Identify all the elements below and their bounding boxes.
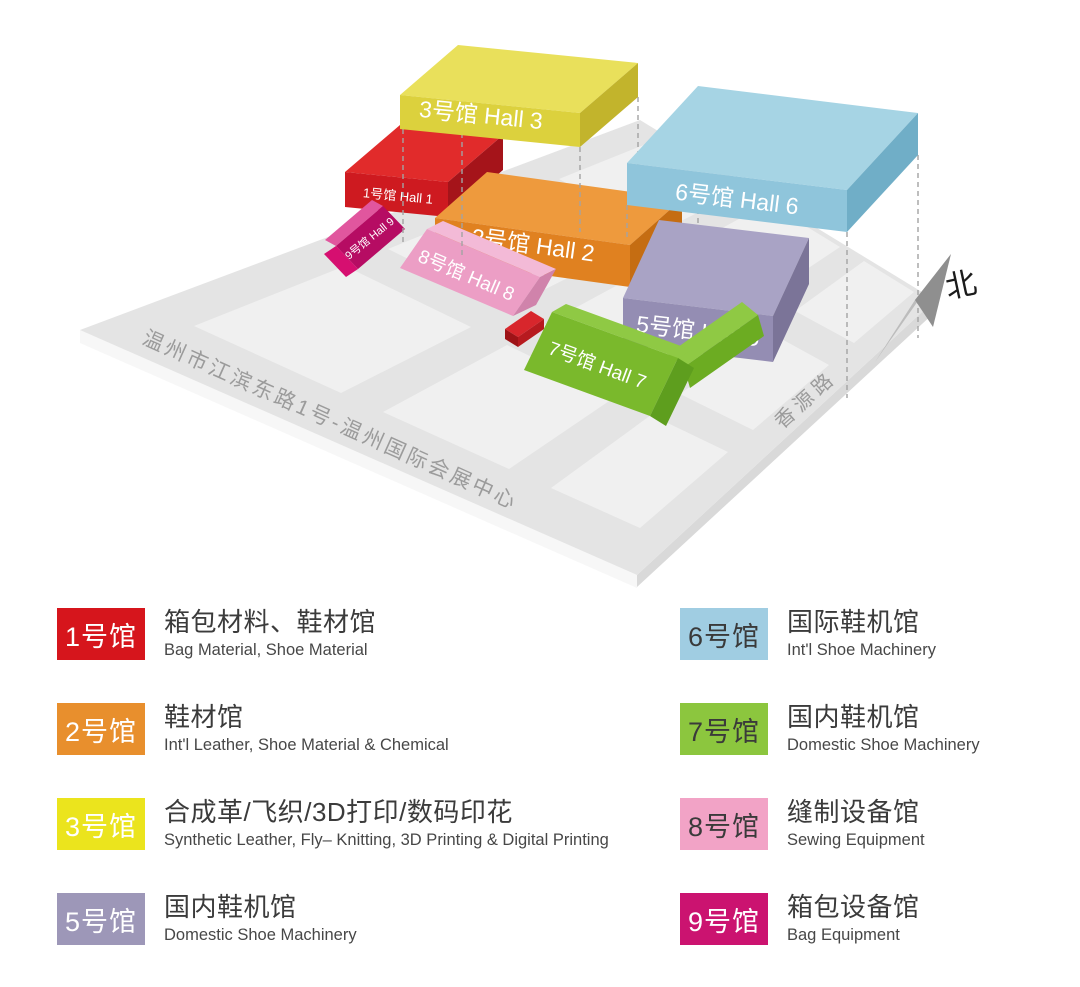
hall-9-subtitle: Bag Equipment xyxy=(787,926,920,945)
hall-6-title: 国际鞋机馆 xyxy=(787,608,936,638)
hall-1-subtitle: Bag Material, Shoe Material xyxy=(164,641,376,660)
hall-8-subtitle: Sewing Equipment xyxy=(787,831,925,850)
hall-7-subtitle: Domestic Shoe Machinery xyxy=(787,736,980,755)
hall-2-badge: 2号馆 xyxy=(57,703,145,755)
legend-item-hall-2: 2号馆 鞋材馆 Int'l Leather, Shoe Material & C… xyxy=(57,703,449,755)
hall-6-badge: 6号馆 xyxy=(680,608,768,660)
hall-3-subtitle: Synthetic Leather, Fly– Knitting, 3D Pri… xyxy=(164,831,609,850)
hall-3-badge: 3号馆 xyxy=(57,798,145,850)
hall-9-title: 箱包设备馆 xyxy=(787,893,920,923)
legend-item-hall-9: 9号馆 箱包设备馆 Bag Equipment xyxy=(680,893,920,945)
hall-7-title: 国内鞋机馆 xyxy=(787,703,980,733)
hall-2-title: 鞋材馆 xyxy=(164,703,449,733)
hall-5-badge: 5号馆 xyxy=(57,893,145,945)
hall-5-subtitle: Domestic Shoe Machinery xyxy=(164,926,357,945)
legend-item-hall-3: 3号馆 合成革/飞织/3D打印/数码印花 Synthetic Leather, … xyxy=(57,798,609,850)
hall-8-badge: 8号馆 xyxy=(680,798,768,850)
hall-8-title: 缝制设备馆 xyxy=(787,798,925,828)
hall-1-title: 箱包材料、鞋材馆 xyxy=(164,608,376,638)
hall-9-badge: 9号馆 xyxy=(680,893,768,945)
legend-item-hall-1: 1号馆 箱包材料、鞋材馆 Bag Material, Shoe Material xyxy=(57,608,376,660)
hall-3-title: 合成革/飞织/3D打印/数码印花 xyxy=(164,798,609,828)
legend-item-hall-6: 6号馆 国际鞋机馆 Int'l Shoe Machinery xyxy=(680,608,936,660)
legend: 1号馆 箱包材料、鞋材馆 Bag Material, Shoe Material… xyxy=(0,0,1080,987)
legend-item-hall-5: 5号馆 国内鞋机馆 Domestic Shoe Machinery xyxy=(57,893,357,945)
hall-1-badge: 1号馆 xyxy=(57,608,145,660)
hall-2-subtitle: Int'l Leather, Shoe Material & Chemical xyxy=(164,736,449,755)
hall-7-badge: 7号馆 xyxy=(680,703,768,755)
hall-5-title: 国内鞋机馆 xyxy=(164,893,357,923)
legend-item-hall-8: 8号馆 缝制设备馆 Sewing Equipment xyxy=(680,798,925,850)
legend-item-hall-7: 7号馆 国内鞋机馆 Domestic Shoe Machinery xyxy=(680,703,980,755)
hall-6-subtitle: Int'l Shoe Machinery xyxy=(787,641,936,660)
